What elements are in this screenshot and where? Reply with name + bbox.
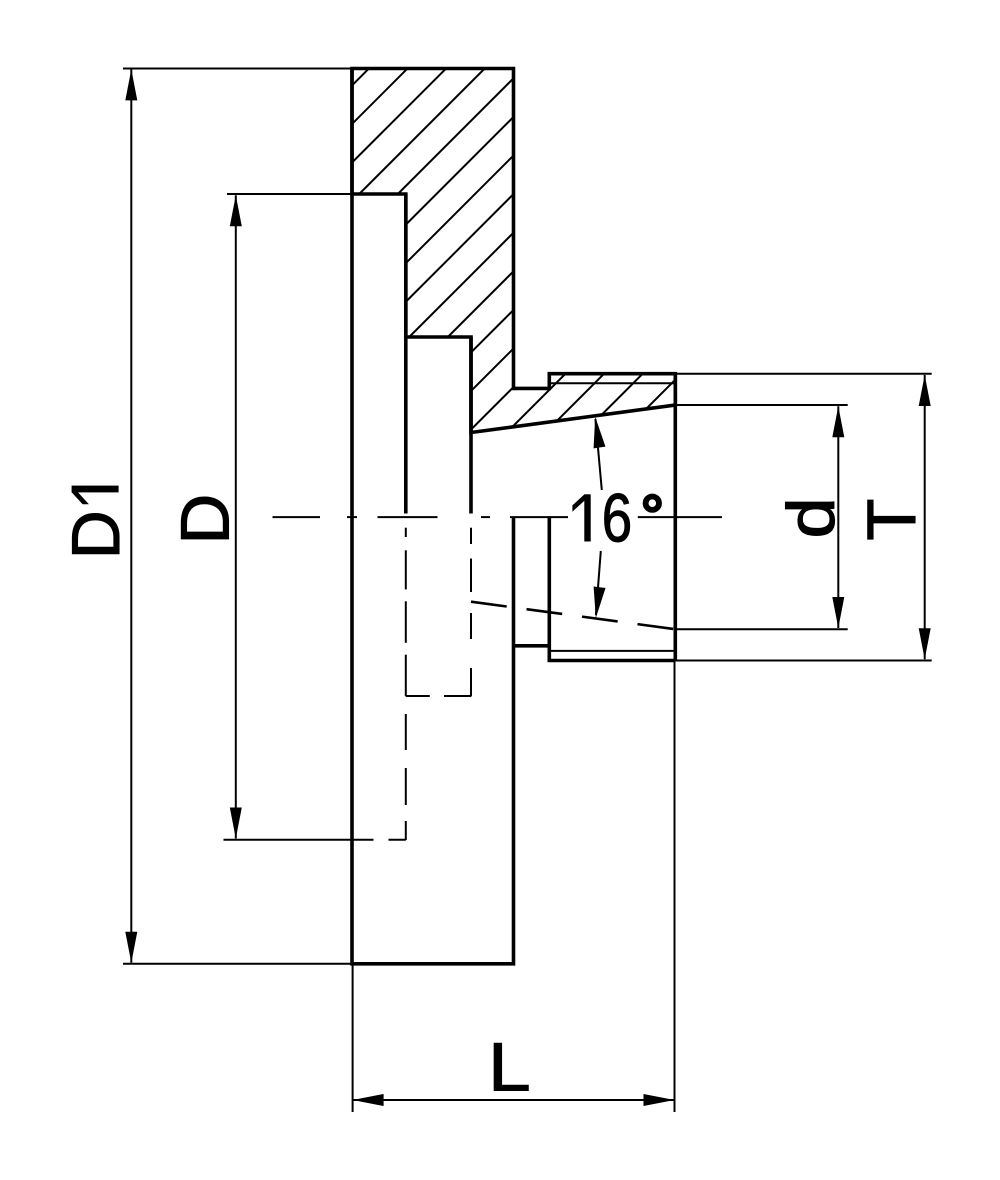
svg-text:6: 6 bbox=[602, 481, 632, 557]
svg-text:D: D bbox=[58, 510, 134, 559]
svg-text:T: T bbox=[853, 499, 930, 541]
svg-text:d: d bbox=[774, 497, 849, 538]
svg-text:L: L bbox=[488, 1029, 531, 1105]
svg-text:D: D bbox=[167, 494, 244, 545]
